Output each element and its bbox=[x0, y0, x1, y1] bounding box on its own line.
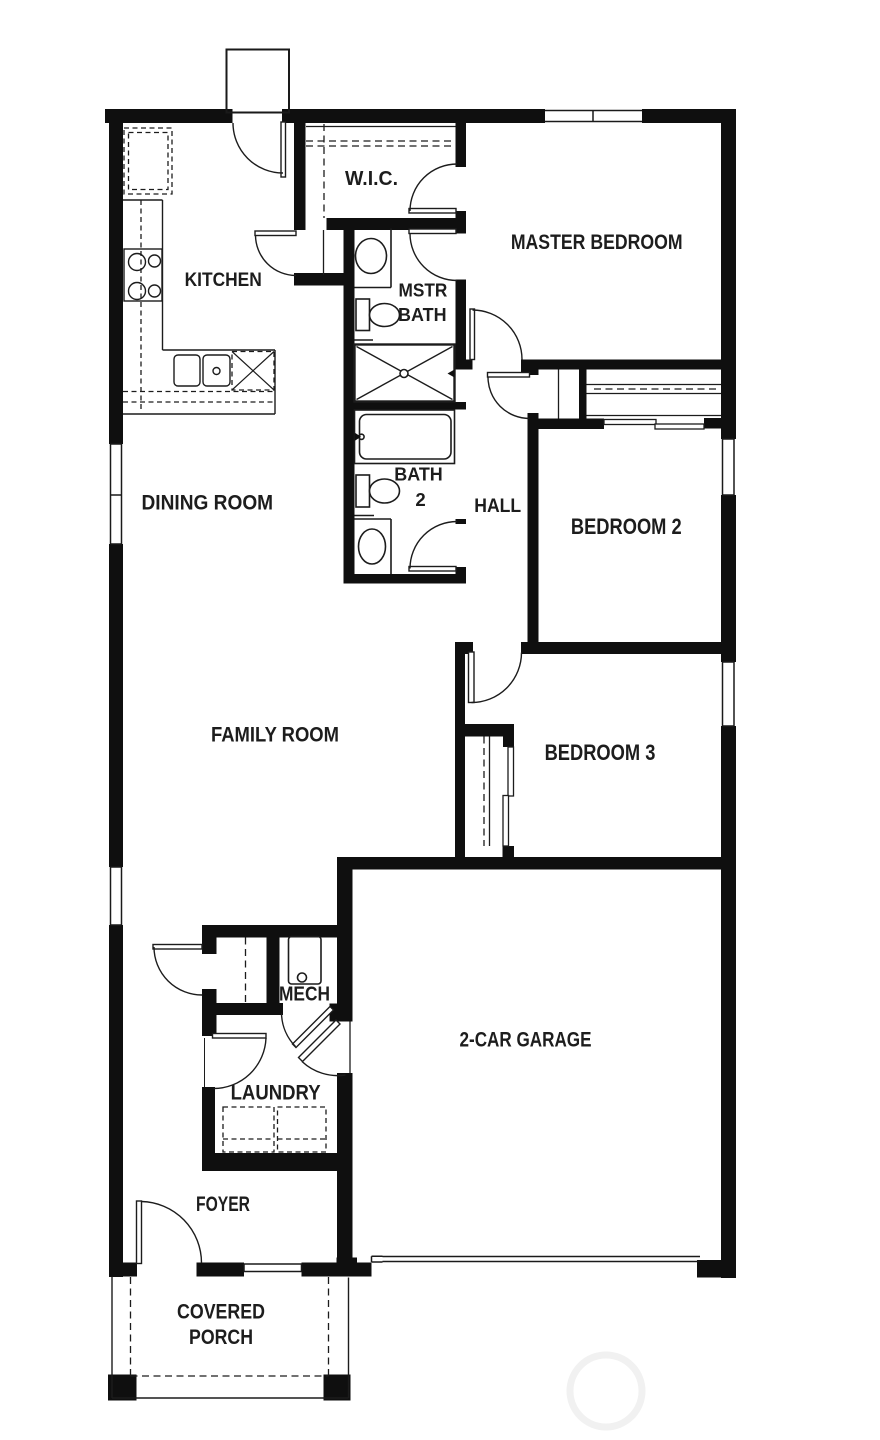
svg-text:BEDROOM 2: BEDROOM 2 bbox=[571, 514, 682, 539]
svg-text:MASTER BEDROOM: MASTER BEDROOM bbox=[511, 230, 683, 254]
svg-text:2: 2 bbox=[415, 489, 425, 510]
svg-text:COVERED: COVERED bbox=[177, 1299, 265, 1324]
svg-text:W.I.C.: W.I.C. bbox=[345, 168, 398, 190]
svg-text:PORCH: PORCH bbox=[189, 1326, 253, 1349]
svg-text:BATH: BATH bbox=[394, 463, 443, 484]
svg-text:LAUNDRY: LAUNDRY bbox=[231, 1082, 321, 1105]
svg-text:MSTR: MSTR bbox=[398, 280, 447, 301]
svg-text:FOYER: FOYER bbox=[196, 1193, 250, 1216]
svg-text:MECH: MECH bbox=[279, 984, 330, 1006]
svg-text:2-CAR GARAGE: 2-CAR GARAGE bbox=[460, 1028, 592, 1052]
svg-text:DINING ROOM: DINING ROOM bbox=[142, 490, 274, 514]
svg-text:HALL: HALL bbox=[474, 496, 521, 517]
svg-text:FAMILY ROOM: FAMILY ROOM bbox=[211, 722, 339, 747]
svg-text:BATH: BATH bbox=[398, 304, 447, 325]
svg-text:KITCHEN: KITCHEN bbox=[185, 270, 262, 291]
svg-text:BEDROOM 3: BEDROOM 3 bbox=[545, 740, 656, 765]
